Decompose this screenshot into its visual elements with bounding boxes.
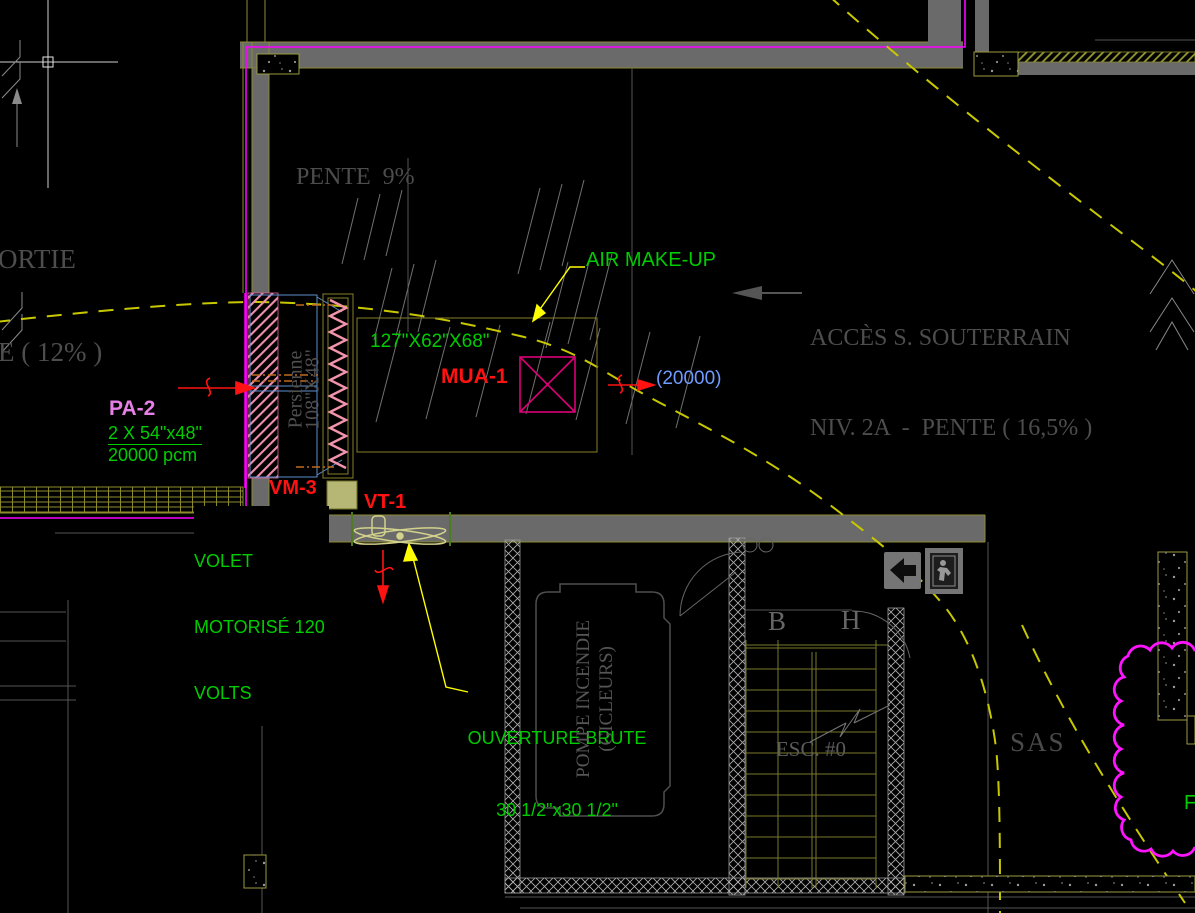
- pa2-size-label: 2 X 54"x48": [108, 423, 202, 444]
- ouverture-label: OUVERTURE BRUTE 30 1/2"x30 1/2": [462, 678, 652, 846]
- mua-flow-label: (20000): [656, 368, 722, 390]
- exit-door-sign-icon: [925, 548, 963, 594]
- acces-left-arrow-icon: [732, 286, 802, 300]
- pompe-line1-label: POMPE INCENDIE: [573, 604, 595, 794]
- pa2-tag-label: PA-2: [109, 397, 155, 421]
- volet-line2: MOTORISÉ 120: [194, 616, 325, 638]
- vm3-tag-label: VM-3: [269, 477, 317, 500]
- stair-b-label: B: [768, 606, 786, 637]
- ramp-direction-arrow-icon: [12, 88, 22, 147]
- air-makeup-label: AIR MAKE-UP: [586, 249, 716, 272]
- persienne-size-label: 108"X48": [302, 330, 325, 450]
- volet-line1: VOLET: [194, 550, 325, 572]
- pompe-line2-label: (GICLEURS): [596, 629, 618, 769]
- pa2-flow-label: 20000 pcm: [108, 445, 197, 466]
- coil-zigzag: [330, 300, 346, 468]
- exit-arrow-sign-icon: [884, 552, 921, 589]
- mua-tag-label: MUA-1: [441, 365, 508, 389]
- acces-line2: NIV. 2A - PENTE ( 16,5% ): [810, 413, 1092, 443]
- cloud-letter-label: F: [1184, 792, 1195, 815]
- volet-label: VOLET MOTORISÉ 120 VOLTS: [194, 506, 329, 726]
- stairwell: [746, 640, 888, 888]
- sortie-ramp-label: ORTIE E ( 12% ): [0, 182, 102, 399]
- sas-concrete-wall: [1158, 552, 1195, 744]
- stair-h-label: H: [841, 605, 861, 636]
- ouverture-line1: OUVERTURE BRUTE: [462, 726, 652, 750]
- sortie-line1: ORTIE: [0, 244, 102, 275]
- vm3-damper-square: [327, 481, 357, 509]
- stair-esc-label: ESC. #0: [761, 737, 861, 761]
- acces-line1: ACCÈS S. SOUTERRAIN: [810, 323, 1092, 353]
- pente9-label: PENTE 9%: [296, 164, 415, 192]
- sortie-line2: E ( 12% ): [0, 337, 102, 368]
- ouverture-line2: 30 1/2"x30 1/2": [462, 798, 652, 822]
- volet-line3: VOLTS: [194, 682, 325, 704]
- pa2-size-text: 2 X 54"x48": [108, 423, 202, 445]
- acces-label: ACCÈS S. SOUTERRAIN NIV. 2A - PENTE ( 16…: [810, 263, 1092, 473]
- cad-floorplan-canvas: ORTIE E ( 12% ) PENTE 9% AIR MAKE-UP ACC…: [0, 0, 1195, 913]
- slope-hatch-marks: [342, 180, 700, 428]
- vt1-tag-label: VT-1: [364, 491, 406, 514]
- mua-size-label: 127"X62"X68": [370, 331, 490, 353]
- sas-label: SAS: [1010, 727, 1066, 758]
